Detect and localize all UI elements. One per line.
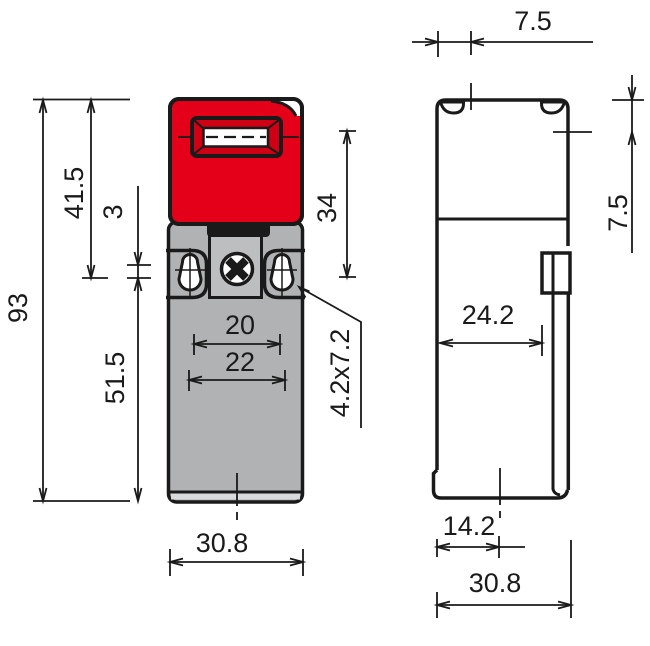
dim-overall-height-label: 93 [3,293,33,323]
dim-slot-to-hole-label: 34 [312,193,342,223]
dim-hole-pitch-inner-label: 20 [225,310,255,340]
side-hook-right [542,102,565,113]
dim-cover-width-label: 24.2 [462,300,515,330]
side-hook-left [441,102,464,113]
dim-lower-height-label: 51.5 [100,352,130,405]
side-dimensions: 7.5 7.5 24.2 14.2 30.8 [412,6,644,618]
base-strip [171,494,300,500]
dim-entry-offset-label: 14.2 [443,511,496,541]
dim-top-to-hole-label: 41.5 [59,167,89,220]
side-cover-inner-line [553,293,560,495]
dim-mounting-hole-size-label: 4.2x7.2 [325,329,355,418]
dim-hole-offset-label: 3 [98,204,128,219]
dim-hole-pitch-outer-label: 22 [225,347,255,377]
side-protrusion [542,253,570,293]
dim-width-front-label: 30.8 [196,528,249,558]
dim-depth-label: 30.8 [469,568,522,598]
drawing-canvas: 93 41.5 3 51.5 34 4.2x7.2 20 22 30.8 7.5… [0,0,650,646]
dimension-drawing: 93 41.5 3 51.5 34 4.2x7.2 20 22 30.8 7.5… [0,0,650,646]
dim-side-offset-label: 7.5 [603,194,633,232]
dim-top-offset-label: 7.5 [514,6,552,36]
